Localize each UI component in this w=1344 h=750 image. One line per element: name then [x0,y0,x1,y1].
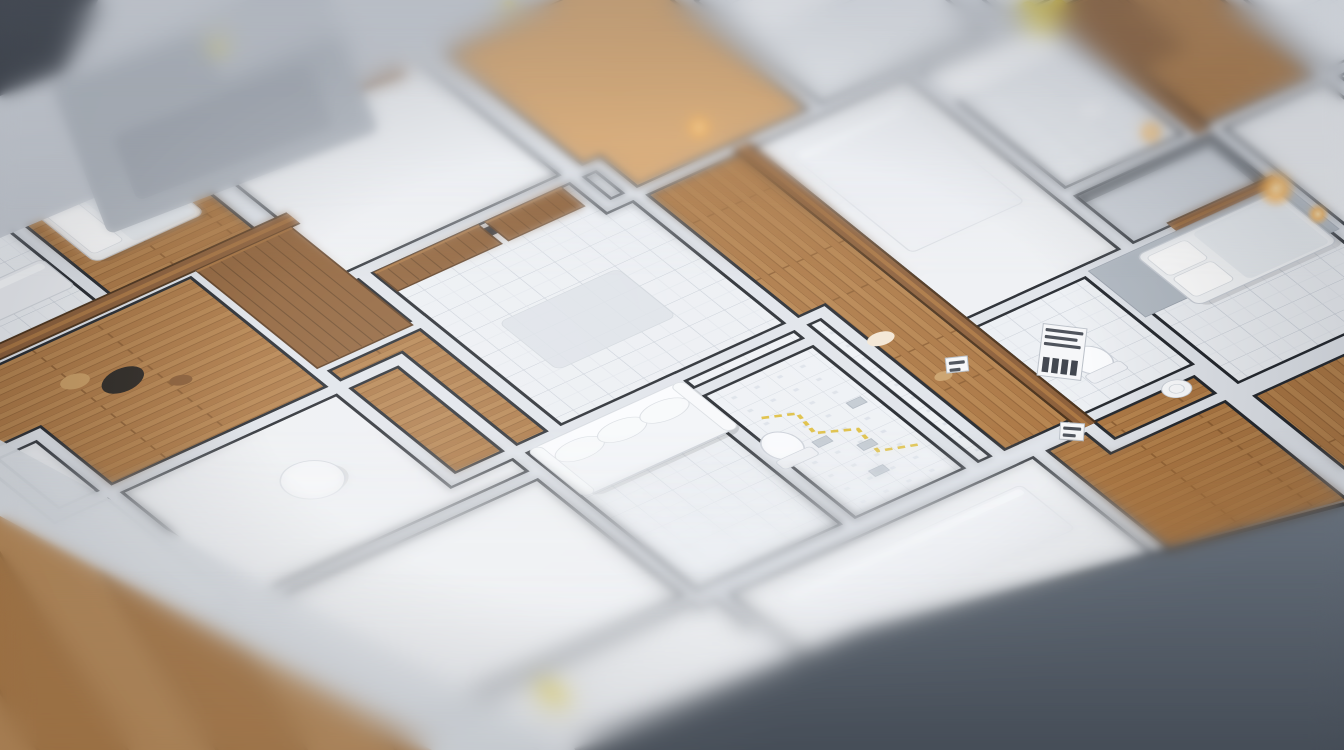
scene-layer-xfar [0,0,1344,750]
floorplan-model-illustration [0,0,1344,750]
architectural-model-photo [0,0,1344,750]
